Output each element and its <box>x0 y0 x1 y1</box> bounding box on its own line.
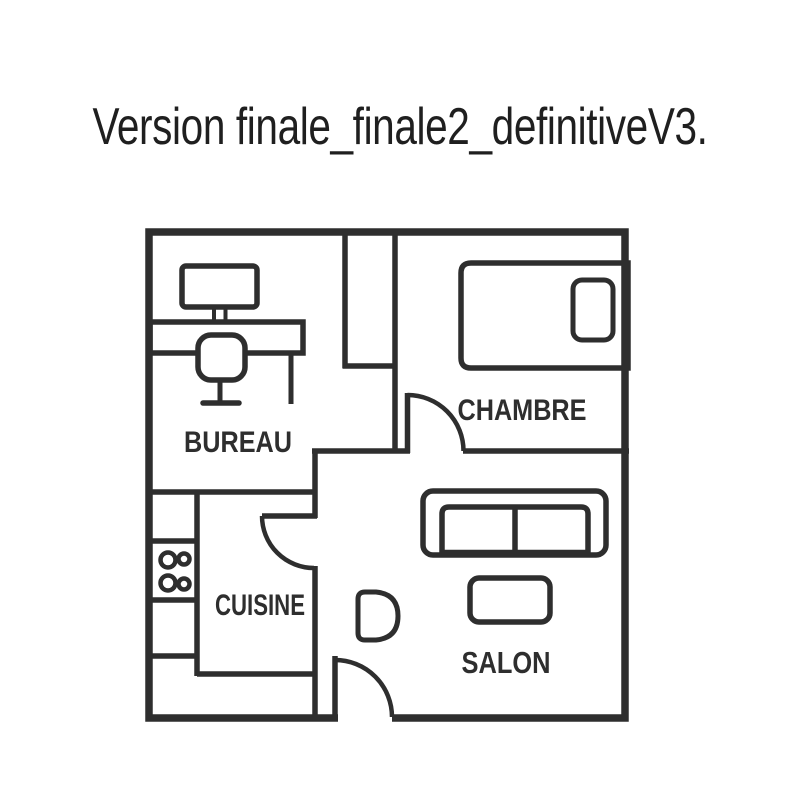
salon-furniture <box>358 491 606 640</box>
stove-burners-icon <box>161 553 190 591</box>
room-label-bureau: BUREAU <box>184 426 292 459</box>
chambre-furniture <box>461 263 628 368</box>
cuisine-furniture <box>146 490 199 676</box>
office-chair-icon <box>198 335 245 380</box>
floor-plan: BUREAU CHAMBRE CUISINE SALON <box>0 0 800 800</box>
room-label-salon: SALON <box>462 645 551 680</box>
chambre-door-icon <box>408 393 464 453</box>
room-label-cuisine: CUISINE <box>215 589 305 622</box>
coffee-table-icon <box>470 578 550 622</box>
armchair-icon <box>358 592 398 640</box>
entry-door-icon <box>335 656 392 721</box>
pillow-icon <box>573 280 613 340</box>
room-label-chambre: CHAMBRE <box>458 394 587 427</box>
bureau-furniture <box>150 266 303 404</box>
computer-monitor-icon <box>182 266 257 307</box>
cuisine-door-icon <box>262 516 317 568</box>
